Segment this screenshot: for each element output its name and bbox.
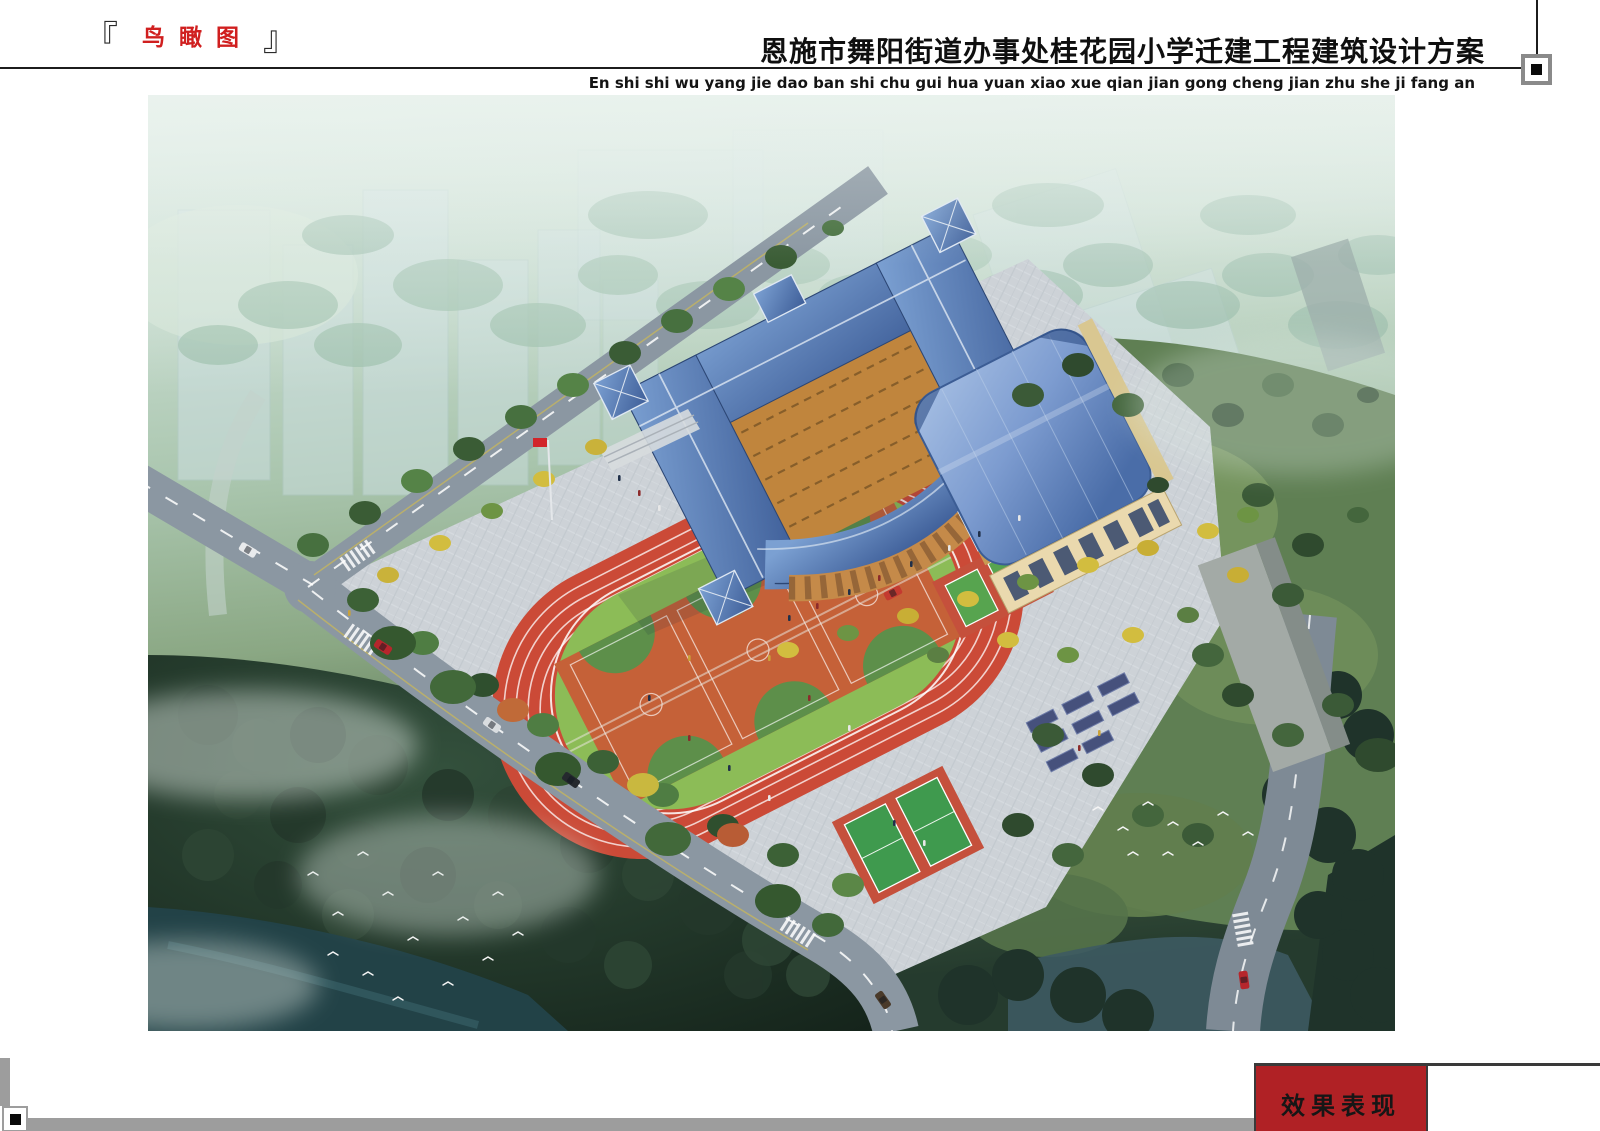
- project-title-pinyin: En shi shi wu yang jie dao ban shi chu g…: [589, 74, 1475, 92]
- project-title: 恩施市舞阳街道办事处桂花园小学迁建工程建筑设计方案: [760, 30, 1485, 70]
- marker-square-icon: [1531, 64, 1542, 75]
- effect-tag-label: 效果表现: [1281, 1076, 1401, 1121]
- effect-tag: 效果表现: [1254, 1066, 1428, 1131]
- header-vertical-line: [1536, 0, 1538, 56]
- footer-horizontal-bar: [28, 1118, 1254, 1131]
- aerial-render-image: [148, 95, 1395, 1031]
- aerial-render-frame: [148, 95, 1395, 1031]
- marker-square-icon: [10, 1114, 21, 1125]
- view-title: 鸟瞰图: [142, 24, 253, 54]
- header-rule: [0, 67, 1537, 69]
- corner-marker-bottom-left: [2, 1106, 28, 1131]
- footer-left-vertical-bar: [0, 1058, 10, 1106]
- presentation-board: 『 鸟瞰图 』 恩施市舞阳街道办事处桂花园小学迁建工程建筑设计方案 En shi…: [0, 0, 1600, 1131]
- bracket-right: 』: [263, 22, 297, 56]
- bracket-left: 『: [84, 22, 118, 56]
- corner-marker-top-right: [1521, 54, 1552, 85]
- view-title-group: 『 鸟瞰图 』: [84, 22, 297, 56]
